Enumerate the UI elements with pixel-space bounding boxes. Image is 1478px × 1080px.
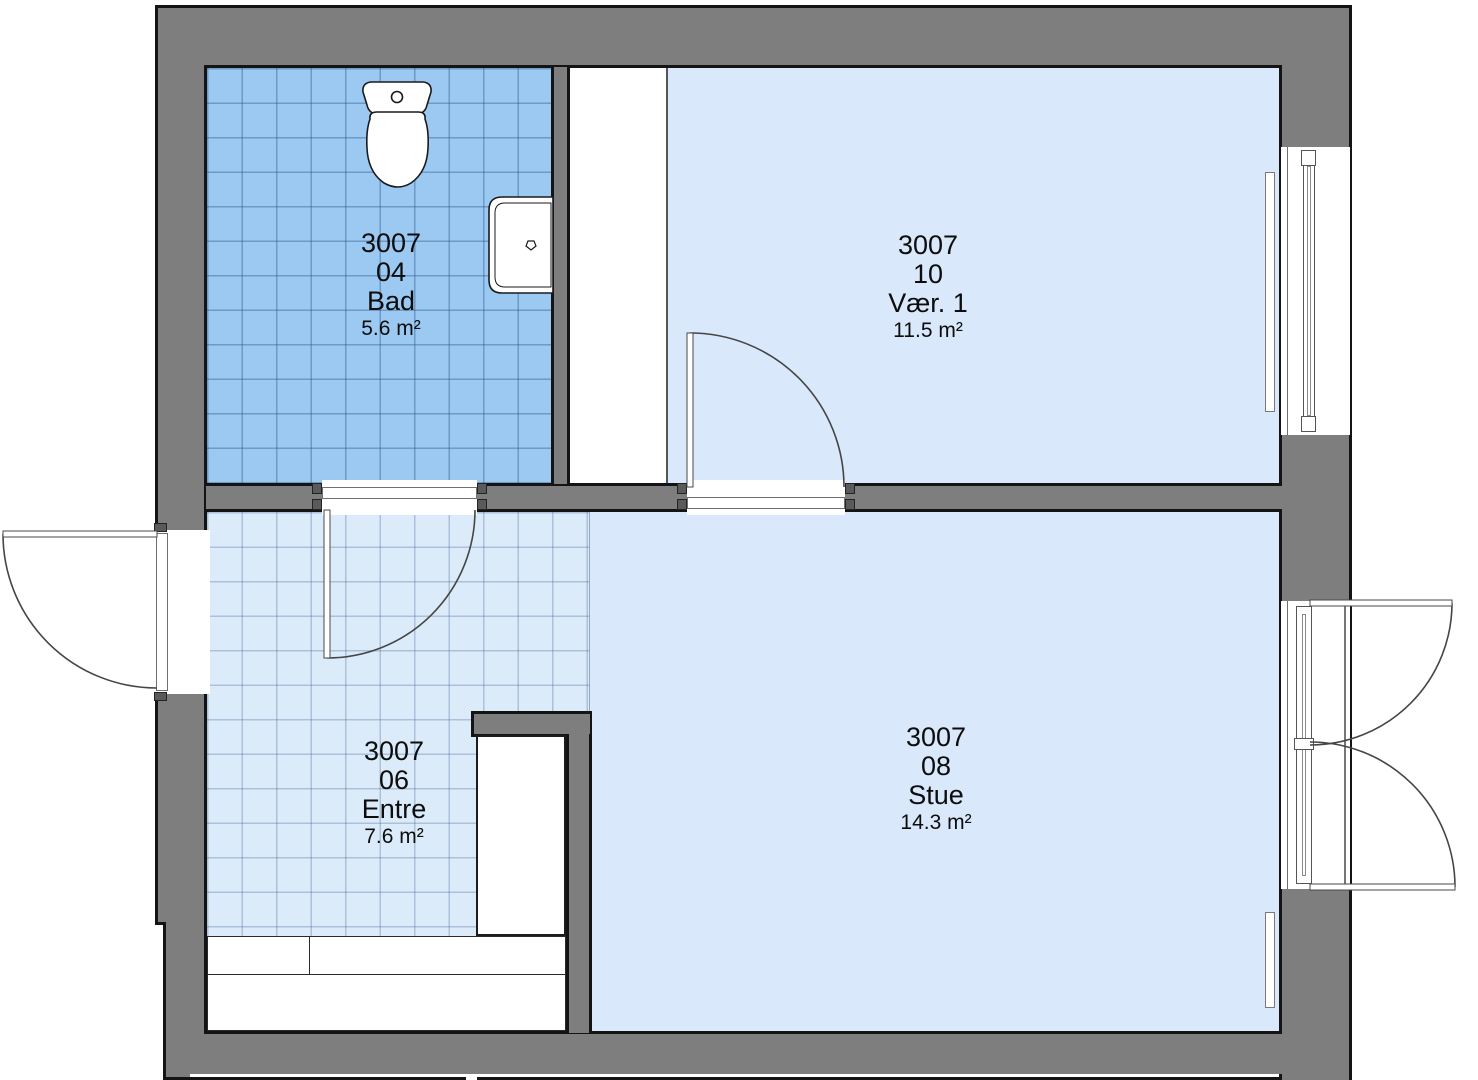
room-number: 06: [362, 766, 427, 795]
bad-door-frame: [322, 487, 477, 499]
zone-line-vaer1: [666, 68, 668, 483]
entrance-jamb-bottom: [154, 692, 167, 701]
radiator-vaer1: [1265, 172, 1275, 412]
wardrobe-long: [207, 974, 566, 1031]
room-building: 3007: [361, 229, 421, 258]
room-area: 11.5 m²: [888, 318, 968, 343]
room-number: 10: [888, 260, 968, 289]
entrance-door-swing: [3, 534, 157, 688]
wall-bottom-fill: [166, 1034, 1349, 1074]
closet-niche: [476, 735, 566, 936]
vaer1-jamb-1: [677, 483, 687, 494]
room-area: 14.3 m²: [900, 810, 971, 835]
window-opening: [1281, 147, 1350, 435]
bad-jamb-4: [477, 499, 487, 510]
entrance-jamb-top: [154, 523, 167, 532]
wall-left-upper-fill: [158, 8, 204, 532]
room-area: 5.6 m²: [361, 316, 421, 341]
entrance-door-frame: [156, 533, 168, 691]
entrance-door-leaf: [3, 531, 157, 537]
room-label-vaer1: 3007 10 Vær. 1 11.5 m²: [888, 231, 968, 343]
room-number: 08: [900, 752, 971, 781]
room-building: 3007: [362, 737, 427, 766]
window-face-line: [1287, 147, 1288, 435]
wardrobe-right: [309, 936, 566, 975]
room-label-entre: 3007 06 Entre 7.6 m²: [362, 737, 427, 849]
bad-jamb-1: [312, 483, 322, 494]
wall-bad-right-fill: [554, 67, 567, 484]
room-building: 3007: [888, 231, 968, 260]
balcony-block-mid: [1294, 738, 1314, 750]
vaer1-door-frame: [687, 497, 845, 509]
zone-line-entre-stue: [589, 512, 590, 712]
room-name: Entre: [362, 795, 427, 824]
room-area: 7.6 m²: [362, 824, 427, 849]
bad-jamb-2: [312, 499, 322, 510]
room-name: Stue: [900, 781, 971, 810]
wall-interior-vert-fill: [569, 714, 589, 1033]
vaer1-jamb-3: [845, 483, 855, 494]
room-building: 3007: [900, 723, 971, 752]
window-block-top: [1301, 150, 1316, 166]
vaer1-jamb-4: [845, 499, 855, 510]
room-vaer1-floor: [667, 68, 1279, 483]
balcony-opening: [1281, 601, 1350, 889]
window-block-bottom: [1301, 416, 1316, 432]
room-label-stue: 3007 08 Stue 14.3 m²: [900, 723, 971, 835]
room-name: Vær. 1: [888, 289, 968, 318]
wall-left-mid-fill: [158, 692, 204, 922]
radiator-stue: [1265, 912, 1275, 1008]
wardrobe-left: [207, 936, 310, 975]
vaer1-jamb-2: [677, 499, 687, 510]
window-glass-line: [1307, 166, 1311, 416]
room-label-bad: 3007 04 Bad 5.6 m²: [361, 229, 421, 341]
wall-top-fill: [158, 8, 1349, 65]
floor-plan: 3007 04 Bad 5.6 m² 3007 10 Vær. 1 11.5 m…: [0, 0, 1478, 1080]
room-number: 04: [361, 258, 421, 287]
room-name: Bad: [361, 287, 421, 316]
balcony-face-line: [1287, 601, 1288, 889]
bad-jamb-3: [477, 483, 487, 494]
